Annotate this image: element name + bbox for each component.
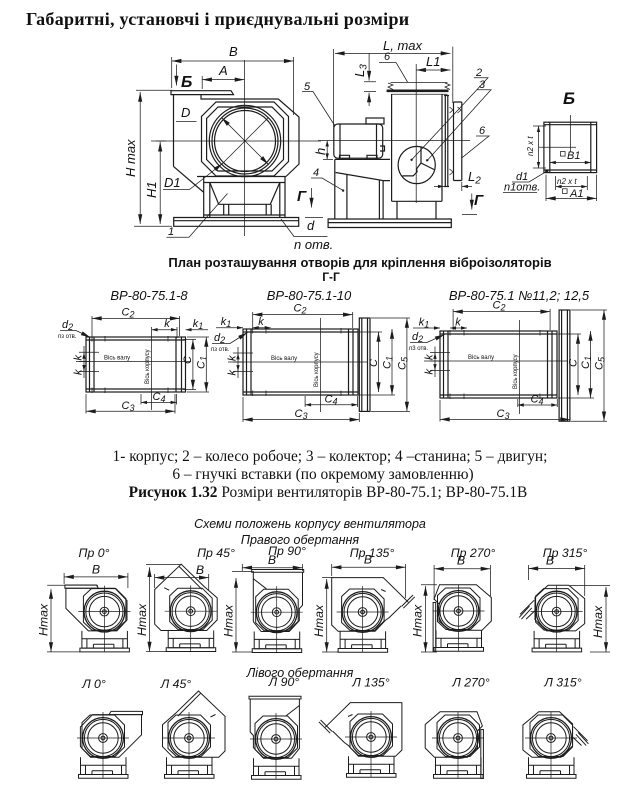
svg-text:пз отв.: пз отв. xyxy=(211,347,230,353)
svg-text:В: В xyxy=(457,554,465,568)
svg-text:n2 х t: n2 х t xyxy=(557,177,577,186)
svg-text:k: k xyxy=(424,354,436,360)
svg-text:Нmax: Нmax xyxy=(222,604,236,637)
svg-text:В: В xyxy=(92,563,100,577)
svg-text:С1: С1 xyxy=(196,356,209,369)
svg-text:n2 х t: n2 х t xyxy=(526,136,535,156)
svg-text:d2: d2 xyxy=(62,319,73,332)
svg-text:План розташування отворів для: План розташування отворів для кріплення … xyxy=(168,255,551,270)
svg-text:Вісь валу: Вісь валу xyxy=(468,355,494,361)
svg-text:Нmax: Нmax xyxy=(135,603,149,636)
svg-text:Л 90°: Л 90° xyxy=(268,675,300,689)
svg-text:k: k xyxy=(73,369,85,375)
svg-text:n1отв.: n1отв. xyxy=(504,182,540,194)
svg-text:B: B xyxy=(229,44,238,59)
svg-text:k: k xyxy=(164,318,170,330)
svg-text:B1: B1 xyxy=(567,150,580,162)
svg-text:пз отв.: пз отв. xyxy=(58,334,77,340)
svg-text:6: 6 xyxy=(384,51,391,63)
svg-text:k1: k1 xyxy=(193,318,204,331)
svg-text:С1: С1 xyxy=(382,356,395,369)
svg-text:Нmax: Нmax xyxy=(312,604,326,637)
svg-text:С4: С4 xyxy=(153,391,166,404)
svg-text:С1: С1 xyxy=(580,356,593,369)
svg-text:Схеми положень корпусу вентиля: Схеми положень корпусу вентилятора xyxy=(194,517,426,531)
svg-text:С5: С5 xyxy=(397,356,410,370)
svg-text:H1: H1 xyxy=(144,181,159,198)
svg-text:L2: L2 xyxy=(468,169,481,187)
svg-text:Нmax: Нmax xyxy=(411,604,425,637)
svg-text:D: D xyxy=(181,105,190,120)
svg-text:k: k xyxy=(227,370,239,376)
svg-text:Г: Г xyxy=(297,188,307,205)
svg-text:ВР-80-75.1 №11,2; 12,5: ВР-80-75.1 №11,2; 12,5 xyxy=(449,288,590,303)
svg-text:С: С xyxy=(368,359,380,367)
svg-text:Л 135°: Л 135° xyxy=(351,676,389,690)
svg-text:d2: d2 xyxy=(214,332,225,345)
svg-text:k: k xyxy=(424,369,436,375)
svg-text:Г: Г xyxy=(474,192,484,209)
svg-text:6: 6 xyxy=(479,125,486,137)
svg-text:Б: Б xyxy=(563,89,575,108)
svg-text:k1: k1 xyxy=(221,316,232,329)
svg-text:H max: H max xyxy=(123,139,138,177)
svg-text:Пр 0°: Пр 0° xyxy=(79,546,110,560)
svg-text:ВР-80-75.1-10: ВР-80-75.1-10 xyxy=(267,288,352,303)
svg-text:3: 3 xyxy=(479,79,486,91)
svg-text:Л 270°: Л 270° xyxy=(451,676,489,690)
svg-text:4: 4 xyxy=(313,167,319,179)
svg-text:Рисунок 1.32 Розміри вентилято: Рисунок 1.32 Розміри вентиляторів ВР-80-… xyxy=(129,484,528,501)
svg-text:С3: С3 xyxy=(122,400,135,413)
svg-text:п3 отв.: п3 отв. xyxy=(409,346,428,352)
svg-text:D1: D1 xyxy=(164,175,181,190)
svg-text:Вісь корпусу: Вісь корпусу xyxy=(145,349,151,384)
svg-text:В: В xyxy=(364,553,372,567)
svg-text:С5: С5 xyxy=(594,356,607,370)
svg-text:1- корпус; 2 – колесо робоче;: 1- корпус; 2 – колесо робоче; 3 – колект… xyxy=(113,448,548,465)
svg-text:Л 45°: Л 45° xyxy=(160,677,192,691)
svg-text:L1: L1 xyxy=(426,54,440,69)
svg-text:Нmax: Нmax xyxy=(37,603,51,636)
svg-text:В: В xyxy=(546,554,554,568)
svg-text:В: В xyxy=(196,563,204,577)
svg-text:k: k xyxy=(455,317,461,329)
svg-text:С2: С2 xyxy=(122,307,135,320)
svg-text:Л 315°: Л 315° xyxy=(543,676,581,690)
svg-text:k1: k1 xyxy=(419,317,430,330)
svg-text:k: k xyxy=(227,355,239,361)
svg-text:k: k xyxy=(258,316,264,328)
svg-text:Вісь корпусу: Вісь корпусу xyxy=(314,352,320,387)
svg-text:Нmax: Нmax xyxy=(591,605,605,638)
svg-text:k: k xyxy=(73,355,85,361)
svg-text:d: d xyxy=(307,218,315,233)
svg-text:2: 2 xyxy=(475,67,482,79)
svg-text:Л 0°: Л 0° xyxy=(81,677,106,691)
svg-text:h: h xyxy=(313,148,328,155)
svg-text:A: A xyxy=(218,63,228,78)
svg-text:Лівого обертання: Лівого обертання xyxy=(246,666,354,680)
svg-text:С: С xyxy=(568,359,580,367)
svg-text:Вісь валу: Вісь валу xyxy=(271,356,297,362)
svg-text:6 – гнучкі вставки (по окремом: 6 – гнучкі вставки (по окремому замовлен… xyxy=(172,466,473,483)
svg-text:Г-Г: Г-Г xyxy=(322,270,340,284)
svg-text:d2: d2 xyxy=(412,331,423,344)
svg-text:Вісь корпусу: Вісь корпусу xyxy=(513,354,519,389)
svg-text:1: 1 xyxy=(168,226,174,238)
svg-text:Пр 45°: Пр 45° xyxy=(197,546,235,560)
svg-text:В: В xyxy=(268,553,276,567)
svg-text:Габаритні, установчі і приєдну: Габаритні, установчі і приєднувальні роз… xyxy=(26,9,409,29)
svg-text:L3: L3 xyxy=(352,64,370,77)
svg-text:Б: Б xyxy=(181,74,192,91)
svg-text:С3: С3 xyxy=(295,408,308,421)
svg-text:С: С xyxy=(182,356,194,364)
svg-text:С3: С3 xyxy=(497,408,510,421)
svg-text:n отв.: n отв. xyxy=(294,237,333,252)
svg-text:Вісь валу: Вісь валу xyxy=(104,356,130,362)
svg-text:ВР-80-75.1-8: ВР-80-75.1-8 xyxy=(110,288,188,303)
svg-text:С2: С2 xyxy=(294,303,307,316)
